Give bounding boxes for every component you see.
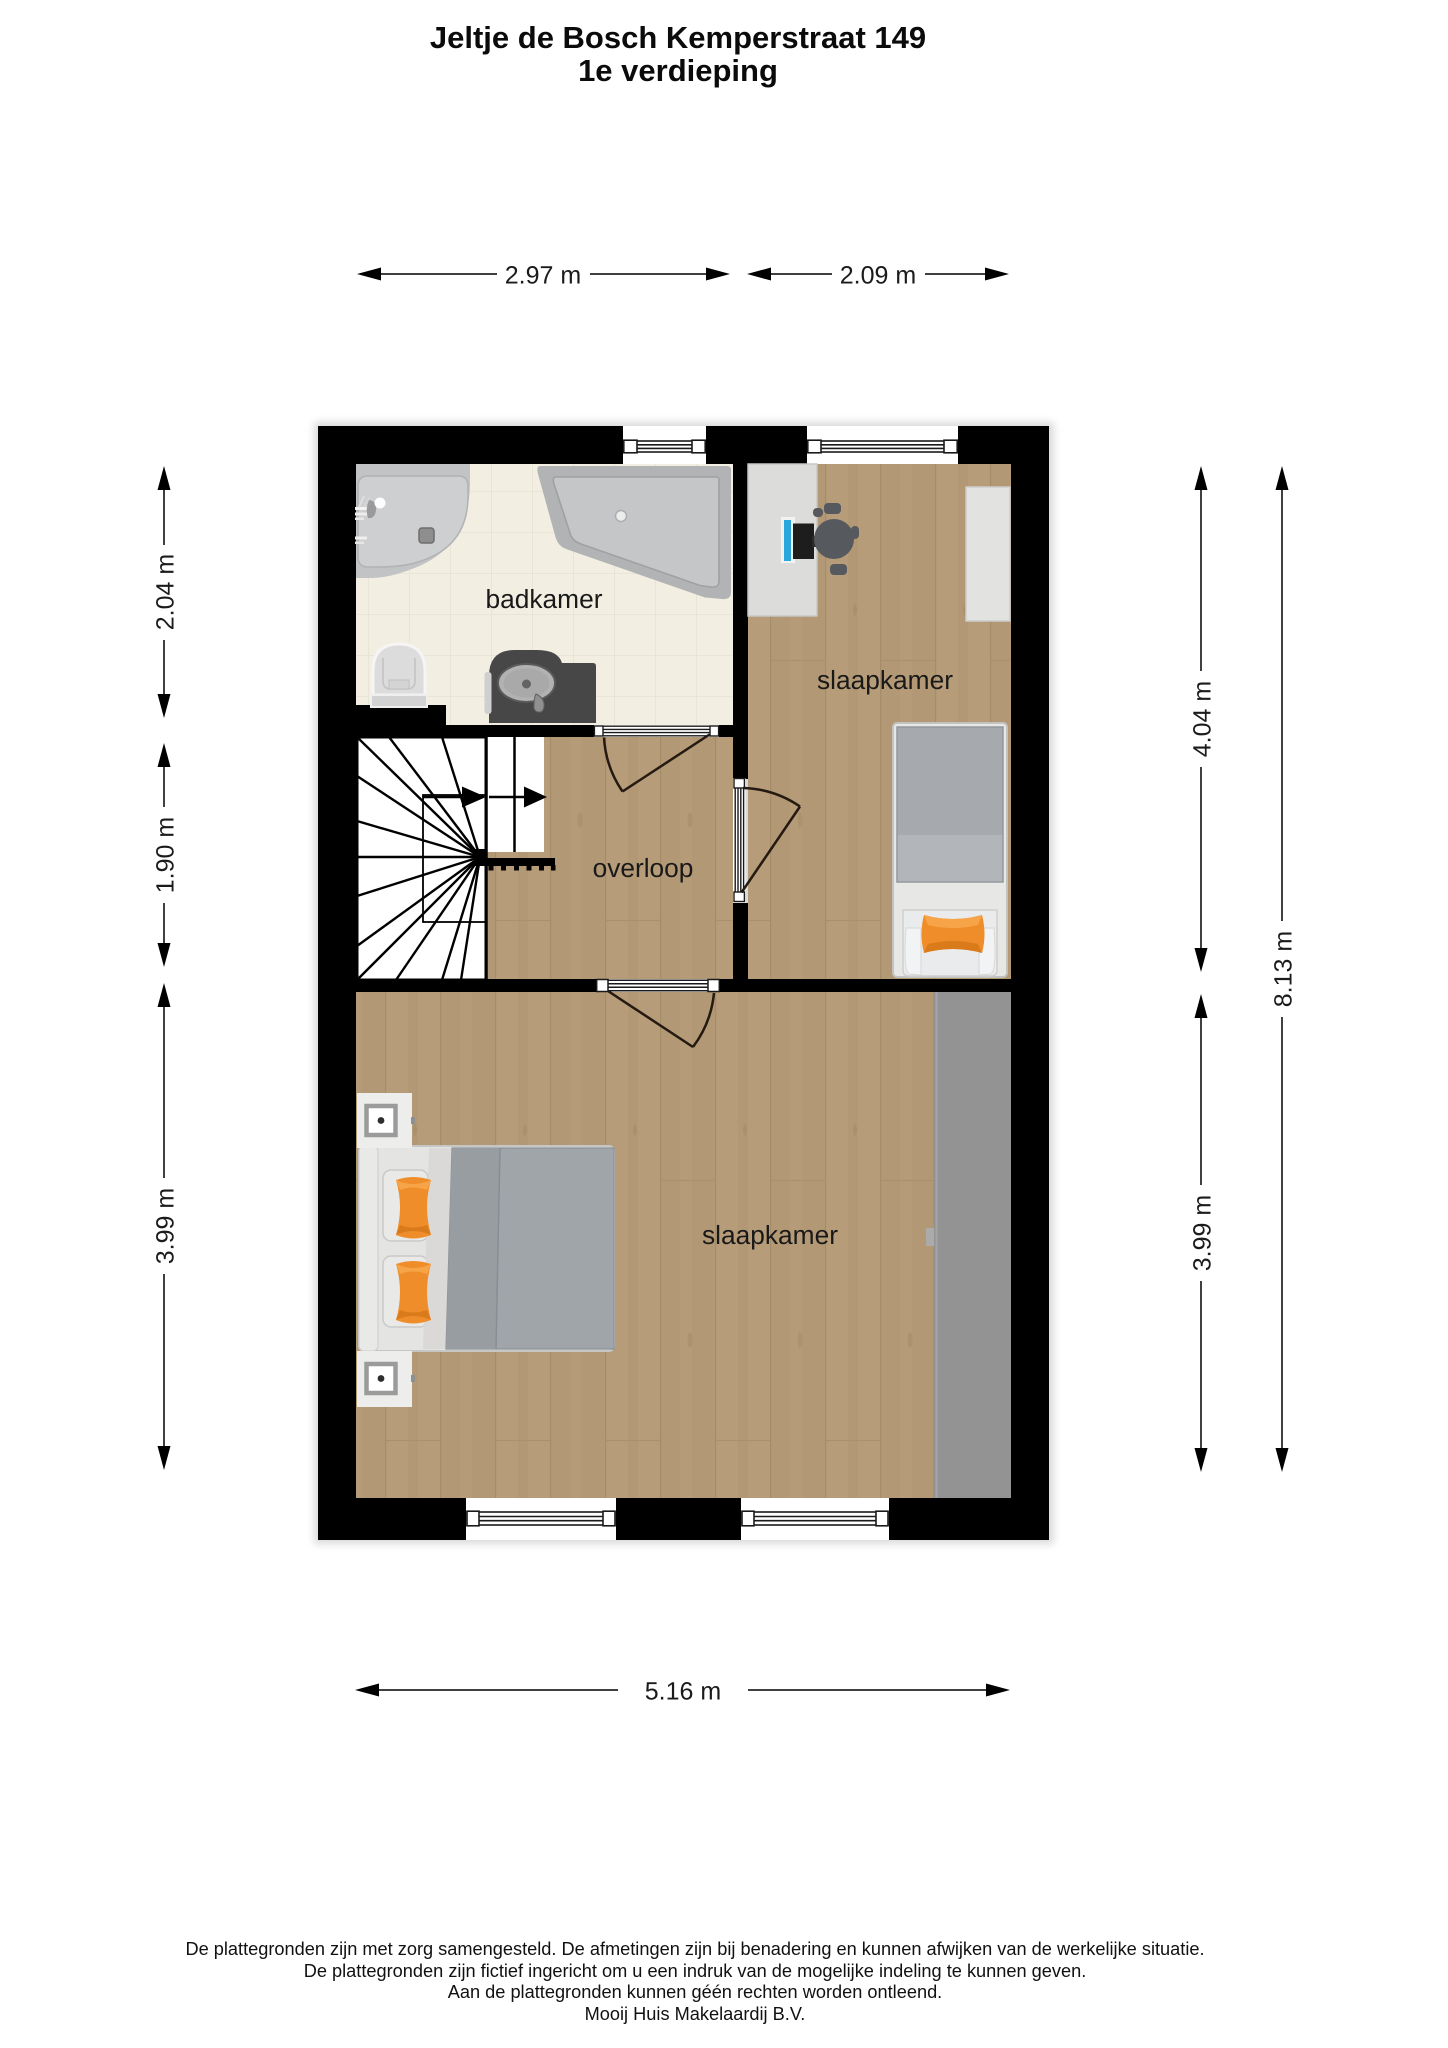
svg-text:slaapkamer: slaapkamer: [817, 665, 953, 695]
svg-text:slaapkamer: slaapkamer: [702, 1220, 838, 1250]
svg-text:3.99 m: 3.99 m: [1189, 1195, 1217, 1271]
svg-text:badkamer: badkamer: [486, 584, 603, 614]
svg-text:8.13 m: 8.13 m: [1270, 931, 1298, 1007]
svg-text:4.04 m: 4.04 m: [1189, 681, 1217, 757]
svg-text:3.99 m: 3.99 m: [152, 1188, 180, 1264]
svg-text:2.97 m: 2.97 m: [505, 262, 581, 290]
svg-text:overloop: overloop: [593, 853, 694, 883]
svg-text:2.04 m: 2.04 m: [152, 554, 180, 630]
svg-text:5.16 m: 5.16 m: [645, 1678, 721, 1706]
svg-text:2.09 m: 2.09 m: [840, 262, 916, 290]
svg-text:1.90 m: 1.90 m: [152, 817, 180, 893]
